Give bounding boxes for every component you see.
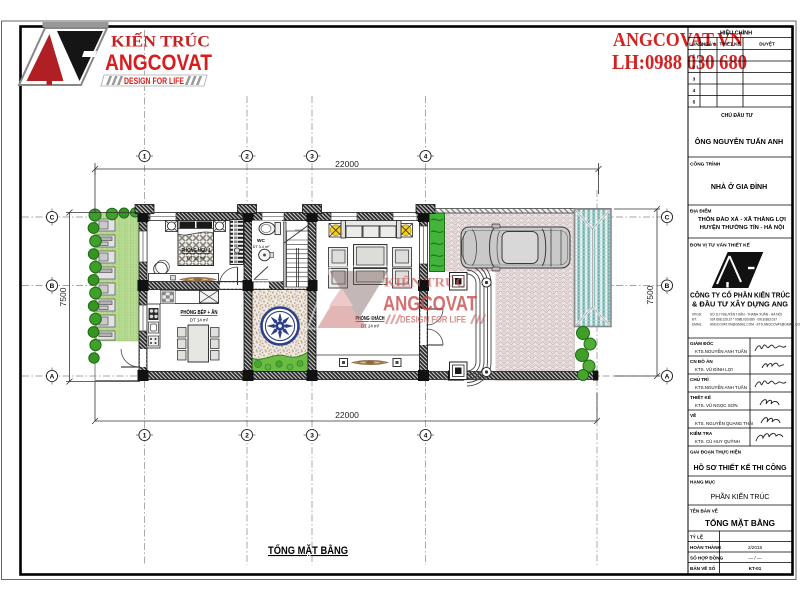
svg-text:1: 1 <box>143 433 147 440</box>
svg-text:LH:0988 030 680: LH:0988 030 680 <box>612 50 747 74</box>
svg-text:CHỦ TRÌ: CHỦ TRÌ <box>690 375 709 382</box>
svg-text:NGÀY: NGÀY <box>702 41 715 47</box>
svg-text:5: 5 <box>693 100 696 106</box>
svg-text:DT 14 m²: DT 14 m² <box>190 318 209 323</box>
svg-text:KIẾN TRÚC: KIẾN TRÚC <box>384 275 466 290</box>
svg-text:THÔN ĐÀO XÁ - XÃ THẮNG LỢI: THÔN ĐÀO XÁ - XÃ THẮNG LỢI <box>698 215 786 223</box>
svg-text:ANGCOVAT: ANGCOVAT <box>105 50 212 75</box>
svg-text:CHỦ ĐẦU TƯ: CHỦ ĐẦU TƯ <box>721 112 753 119</box>
svg-text:LẦN: LẦN <box>689 41 699 47</box>
svg-text:SỐ 117 NGUYỄN TUÂN - THANH XUÂ: SỐ 117 NGUYỄN TUÂN - THANH XUÂN - HÀ NỘI <box>710 312 782 317</box>
svg-text:HIỆU CHỈNH: HIỆU CHỈNH <box>720 29 752 37</box>
svg-text:B: B <box>50 283 55 290</box>
svg-text:DESIGN FOR LIFE: DESIGN FOR LIFE <box>124 76 184 86</box>
svg-text:TỔNG MẶT BẰNG: TỔNG MẶT BẰNG <box>268 544 348 557</box>
svg-text:VPGD:: VPGD: <box>692 313 702 317</box>
svg-text:ANGCOVAT: ANGCOVAT <box>383 293 477 316</box>
svg-text:& ĐẦU TƯ XÂY DỰNG ANG: & ĐẦU TƯ XÂY DỰNG ANG <box>692 299 788 309</box>
svg-text:EMAIL:: EMAIL: <box>692 323 703 327</box>
svg-text:4: 4 <box>693 88 696 94</box>
svg-text:DUYỆT: DUYỆT <box>759 40 775 47</box>
svg-text:C: C <box>50 215 55 222</box>
svg-text:KTS.NGUYỄN ANH TUẤN: KTS.NGUYỄN ANH TUẤN <box>695 385 747 390</box>
svg-text:PHÒNG NGỦ 1: PHÒNG NGỦ 1 <box>182 246 211 254</box>
svg-text:2: 2 <box>245 154 249 161</box>
svg-text:KIẾN TRÚC: KIẾN TRÚC <box>111 32 210 51</box>
svg-text:4: 4 <box>424 154 428 161</box>
svg-text:ANGCOVAT.VN@GMAIL.COM - KTS.AN: ANGCOVAT.VN@GMAIL.COM - KTS.ANGCOVAT@GMA… <box>710 323 800 327</box>
svg-text:A: A <box>50 374 55 381</box>
svg-text:7500: 7500 <box>58 287 68 306</box>
svg-text:TÊN BẢN VẼ: TÊN BẢN VẼ <box>690 507 718 514</box>
svg-text:BẢN VẼ SỐ: BẢN VẼ SỐ <box>690 565 716 571</box>
svg-text:ĐT:: ĐT: <box>692 318 697 322</box>
svg-text:DESIGN FOR LIFE: DESIGN FOR LIFE <box>400 315 466 325</box>
svg-text:KTS. CÙ HUY QUỲNH: KTS. CÙ HUY QUỲNH <box>695 439 740 444</box>
svg-text:7500: 7500 <box>645 285 655 304</box>
svg-text:22000: 22000 <box>335 410 359 420</box>
svg-text:22000: 22000 <box>335 159 359 169</box>
svg-text:3: 3 <box>693 77 696 83</box>
svg-text:A: A <box>665 374 670 381</box>
svg-text:ĐƠN VỊ TƯ VẤN THIẾT KẾ: ĐƠN VỊ TƯ VẤN THIẾT KẾ <box>690 242 751 249</box>
svg-text:KT-01: KT-01 <box>749 566 762 571</box>
svg-text:— / —: — / — <box>748 556 761 561</box>
svg-text:TỔNG MẶT BẰNG: TỔNG MẶT BẰNG <box>705 517 775 528</box>
svg-text:1: 1 <box>143 154 147 161</box>
svg-text:PHÒNG BẾP + ĂN: PHÒNG BẾP + ĂN <box>181 308 218 316</box>
svg-text:B: B <box>665 283 670 290</box>
svg-text:HẠNG MỤC: HẠNG MỤC <box>690 480 716 485</box>
svg-text:3: 3 <box>310 154 314 161</box>
svg-text:THIẾT KẾ: THIẾT KẾ <box>690 394 711 400</box>
svg-text:2: 2 <box>693 65 696 71</box>
svg-text:2/2018: 2/2018 <box>748 545 762 550</box>
svg-text:DT 3.4 m²: DT 3.4 m² <box>253 245 271 249</box>
svg-text:KTS. NGUYỄN QUANG THÁI: KTS. NGUYỄN QUANG THÁI <box>695 421 753 426</box>
svg-text:KTS. VŨ ĐÌNH LỢI: KTS. VŨ ĐÌNH LỢI <box>695 367 733 372</box>
svg-text:NHÀ Ở GIA ĐÌNH: NHÀ Ở GIA ĐÌNH <box>711 182 767 191</box>
svg-text:CÔNG TY CỔ PHẦN KIẾN TRÚC: CÔNG TY CỔ PHẦN KIẾN TRÚC <box>690 290 791 300</box>
svg-text:SỐ HỢP ĐỒNG: SỐ HỢP ĐỒNG <box>690 555 724 561</box>
svg-text:DT 16 m²: DT 16 m² <box>187 256 206 261</box>
svg-text:3: 3 <box>310 433 314 440</box>
svg-text:GIAI ĐOẠN THỰC HIỆN: GIAI ĐOẠN THỰC HIỆN <box>690 448 742 455</box>
svg-text:VẼ: VẼ <box>690 412 696 418</box>
svg-text:WC: WC <box>257 238 266 244</box>
svg-text:4: 4 <box>424 433 428 440</box>
svg-text:HUYỆN THƯỜNG TÍN - HÀ NỘI: HUYỆN THƯỜNG TÍN - HÀ NỘI <box>700 223 785 231</box>
svg-text:KIỂM TRA: KIỂM TRA <box>690 430 713 436</box>
svg-text:C: C <box>665 215 670 222</box>
svg-text:TỶ LỆ: TỶ LỆ <box>690 533 703 540</box>
svg-text:2: 2 <box>245 433 249 440</box>
svg-text:ÔNG NGUYỄN TUẤN ANH: ÔNG NGUYỄN TUẤN ANH <box>695 136 783 146</box>
svg-text:1: 1 <box>693 54 696 60</box>
svg-text:GIÁM ĐỐC: GIÁM ĐỐC <box>690 340 714 346</box>
svg-text:024.668.228.37 * 0988.030.680: 024.668.228.37 * 0988.030.680 - 0918.883… <box>710 318 777 322</box>
svg-text:THIẾT KẾ: THIẾT KẾ <box>720 41 741 47</box>
svg-text:HOÀN THÀNH: HOÀN THÀNH <box>690 544 722 550</box>
svg-text:KTS. VŨ NGỌC SƠN: KTS. VŨ NGỌC SƠN <box>695 403 738 408</box>
svg-text:ĐỊA ĐIỂM: ĐỊA ĐIỂM <box>690 208 711 215</box>
svg-text:CN ĐỒ ÁN: CN ĐỒ ÁN <box>690 358 713 364</box>
svg-text:KTS.NGUYỄN ANH TUẤN: KTS.NGUYỄN ANH TUẤN <box>695 349 747 354</box>
